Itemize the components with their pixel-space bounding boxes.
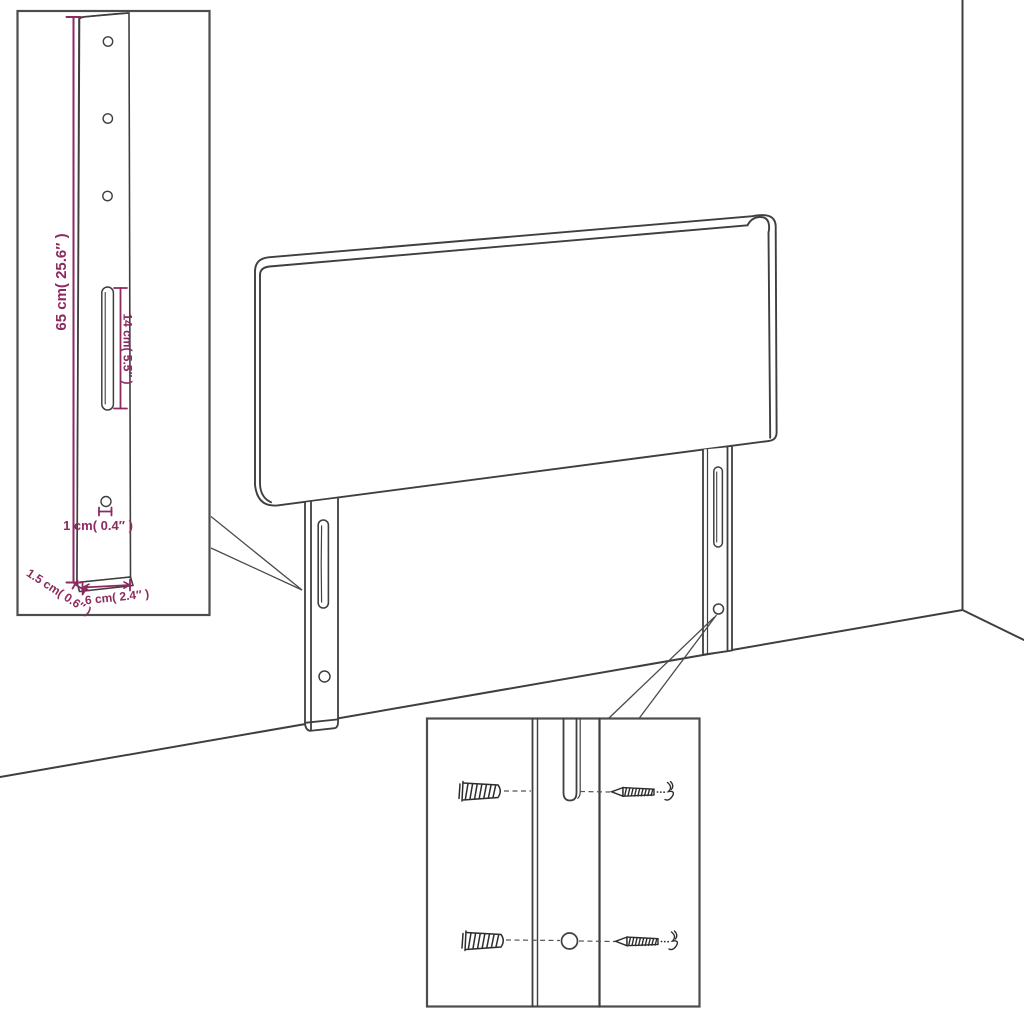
leg-detail-hole-1 — [103, 37, 112, 46]
leg-detail-hole-2 — [103, 114, 112, 123]
floor-line-right — [963, 610, 1024, 640]
headboard-panel — [255, 215, 777, 506]
right-leg-hole — [714, 604, 724, 614]
right-leg-slot — [714, 467, 723, 547]
left-leg — [305, 498, 338, 731]
leg-detail-slot — [102, 287, 114, 410]
diagram-page: 65 cm( 25.6″ ) 14 cm( 5.5″ ) 1 cm( 0.4″ … — [0, 0, 1024, 1024]
leg-detail-hole-3 — [103, 191, 112, 200]
left-leg-hole — [319, 671, 330, 682]
dimension-label-slot: 14 cm( 5.5″ ) — [120, 301, 136, 398]
callout-left-leg-2 — [211, 548, 302, 590]
left-leg-slot — [318, 520, 328, 608]
callout-right-leg-1 — [639, 615, 717, 719]
dimension-label-height: 65 cm( 25.6″ ) — [54, 223, 70, 341]
dimension-label-hole: 1 cm( 0.4″ ) — [51, 518, 145, 534]
mounting-detail-inset — [427, 719, 700, 1007]
callout-left-leg-1 — [211, 517, 302, 591]
callout-lines — [211, 517, 717, 719]
leg-detail-hole-bottom — [101, 497, 111, 507]
diagram-canvas — [0, 0, 1024, 1024]
